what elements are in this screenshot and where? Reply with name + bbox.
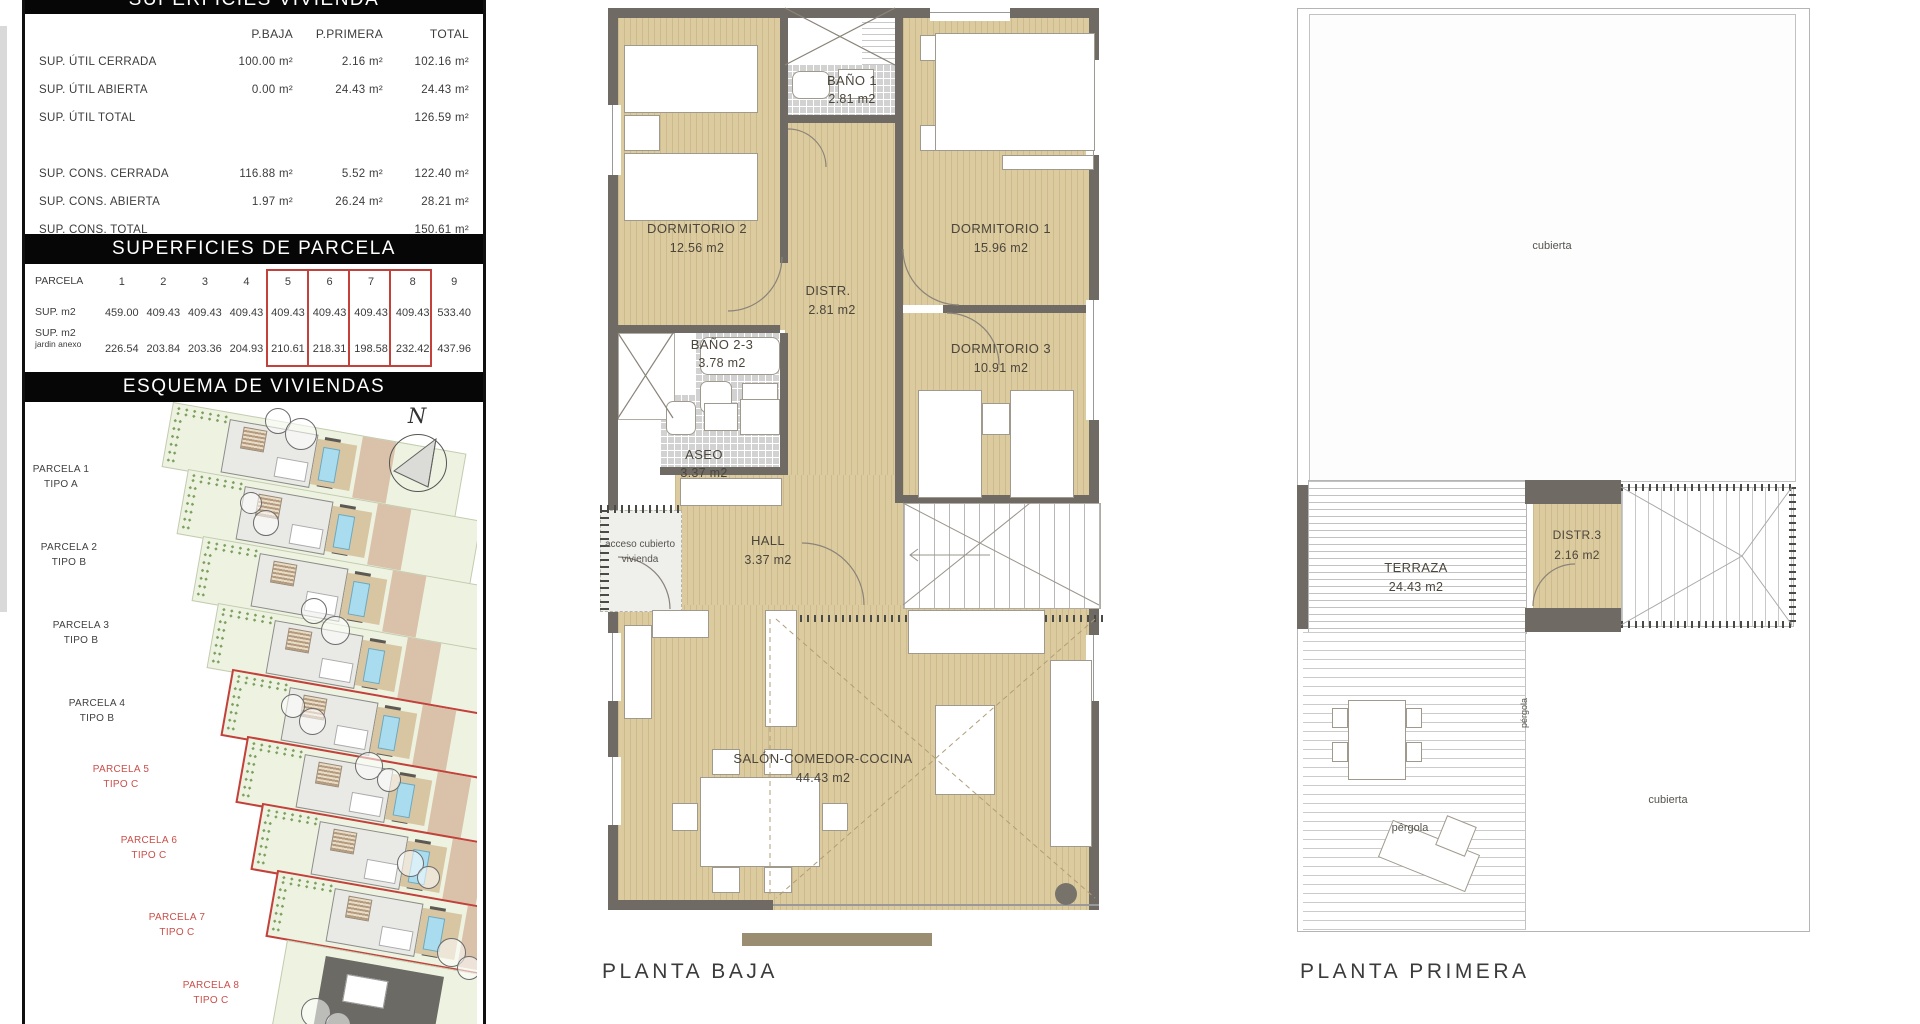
room-name: DISTR.	[805, 283, 850, 298]
cell-value: 102.16 m²	[383, 48, 469, 76]
hporch	[289, 524, 324, 549]
span: TIPO A	[44, 479, 78, 490]
hporch	[349, 792, 384, 817]
hroad	[382, 570, 426, 637]
jardin-value: 226.54	[101, 328, 143, 370]
row-label: PARCELA	[35, 266, 101, 298]
span: acceso cubierto	[605, 539, 675, 550]
g	[903, 503, 1099, 605]
parcel-number: 4	[226, 266, 268, 298]
jardin-value: 437.96	[433, 328, 475, 370]
parcel-number: 9	[433, 266, 475, 298]
hedge-v	[240, 751, 258, 799]
sup-value: 409.43	[226, 298, 268, 328]
hedge-v	[165, 416, 183, 464]
span: PARCELA 5	[93, 764, 149, 775]
jardin-value: 203.84	[143, 328, 185, 370]
planta-baja-plan: DORMITORIO 2 12.56 m2 BAÑO 1 2.81 m2 DOR…	[600, 5, 1115, 945]
path	[802, 543, 864, 605]
hroad	[397, 637, 441, 704]
room-name: TERRAZA	[1384, 560, 1447, 575]
panel-header-text: SUPERFICIES VIVIENDA	[129, 0, 380, 11]
planta-primera-plan: cubierta TERRAZA 24.43 m2 DIS	[1290, 8, 1810, 932]
hhatch	[345, 896, 372, 922]
room-area: 3.37 m2	[680, 466, 727, 480]
tree-icon	[417, 866, 440, 889]
jardin-value: 204.93	[226, 328, 268, 370]
col-header-total: TOTAL	[383, 20, 469, 48]
room-name: SALÓN-COMEDOR-COCINA	[733, 751, 912, 766]
span: PARCELA 7	[149, 912, 205, 923]
path	[1621, 487, 1742, 556]
sup-value: 459.00	[101, 298, 143, 328]
cell-value: 2.16 m²	[293, 48, 383, 76]
cell-value	[293, 104, 383, 132]
cell-value: 24.43 m²	[383, 76, 469, 104]
parcel-number: 2	[143, 266, 185, 298]
row-label: SUP. ÚTIL CERRADA	[39, 48, 215, 76]
room-name: DORMITORIO 1	[951, 221, 1051, 236]
compass-north-label: N	[408, 404, 426, 428]
tree-icon	[301, 598, 327, 624]
hhatch	[330, 829, 357, 855]
path	[1742, 556, 1792, 625]
cubierta-bottom-label: cubierta	[1648, 792, 1687, 809]
architectural-plan-sheet: SUPERFICIES VIVIENDA P.BAJA P.PRIMERA TO…	[0, 0, 1920, 1024]
row-label: SUP. ÚTIL TOTAL	[39, 104, 215, 132]
span: PARCELA 3	[53, 620, 109, 631]
tree-icon	[299, 708, 326, 735]
parcel-number: 3	[184, 266, 226, 298]
parcela-section-title: SUPERFICIES DE PARCELA	[112, 238, 396, 259]
parcel-label-8: PARCELA 8TIPO C	[183, 978, 239, 1008]
room-area: 3.37 m2	[744, 553, 791, 567]
highlight-box-parcela-7	[349, 270, 390, 366]
parcela-section-header: SUPERFICIES DE PARCELA	[25, 234, 483, 264]
cell-value: 0.00 m²	[215, 76, 293, 104]
hedge-v	[255, 818, 273, 866]
hedge-v	[270, 885, 288, 933]
cell-value: 28.21 m²	[383, 188, 469, 216]
parcel-label-4: PARCELA 4TIPO B	[69, 696, 125, 726]
room-name: HALL	[751, 533, 785, 548]
span: TIPO C	[103, 779, 138, 790]
room-area: 15.96 m2	[974, 241, 1029, 255]
acceso-label: acceso cubiertovivienda	[605, 537, 675, 567]
span: vivienda	[622, 554, 659, 565]
path	[903, 503, 1030, 605]
hporch	[319, 658, 354, 683]
hporch	[364, 859, 399, 884]
panel-header-clipped: SUPERFICIES VIVIENDA	[25, 0, 483, 14]
col-header-pprimera: P.PRIMERA	[293, 20, 383, 48]
span: TIPO C	[159, 927, 194, 938]
span: PARCELA 6	[121, 835, 177, 846]
parcel-label-2: PARCELA 2TIPO B	[41, 540, 97, 570]
highlight-box-parcela-8	[390, 270, 431, 366]
planta-baja-linework	[600, 5, 1115, 945]
span: TIPO B	[80, 713, 115, 724]
hhatch	[240, 427, 267, 453]
cell-value	[215, 104, 293, 132]
jardin-label-2: jardin anexo	[35, 340, 81, 349]
parcel-label-3: PARCELA 3TIPO B	[53, 618, 109, 648]
tree-icon	[377, 768, 401, 792]
span: PARCELA 1	[33, 464, 89, 475]
room-name: ASEO	[685, 447, 723, 462]
parcel-label-7: PARCELA 7TIPO C	[149, 910, 205, 940]
pergola-vertical-label: pérgola	[1518, 698, 1532, 728]
cell-value: 26.24 m²	[293, 188, 383, 216]
cell-value: 100.00 m²	[215, 48, 293, 76]
sup-value: 409.43	[143, 298, 185, 328]
path	[1533, 564, 1575, 606]
hporch	[274, 457, 309, 482]
parcel-label-6: PARCELA 6TIPO C	[121, 833, 177, 863]
tree-icon	[253, 510, 279, 536]
span: PARCELA 2	[41, 542, 97, 553]
sup-value: 533.40	[433, 298, 475, 328]
cell-value: 5.52 m²	[293, 160, 383, 188]
room-name: DORMITORIO 2	[647, 221, 747, 236]
parcel-number: 1	[101, 266, 143, 298]
edge-sliver	[0, 26, 7, 612]
room-name: DISTR.3	[1553, 528, 1602, 542]
hhatch	[270, 561, 297, 587]
cell-value: 116.88 m²	[215, 160, 293, 188]
cell-value: 126.59 m²	[383, 104, 469, 132]
path	[947, 313, 999, 365]
hroad	[412, 704, 456, 771]
sup-value: 409.43	[184, 298, 226, 328]
room-area: 12.56 m2	[670, 241, 725, 255]
jardin-value: 203.36	[184, 328, 226, 370]
jardin-label-1: SUP. m2	[35, 328, 76, 340]
span: TIPO C	[193, 995, 228, 1006]
path	[788, 129, 826, 167]
compass-icon	[389, 434, 447, 492]
room-area: 44.43 m2	[796, 771, 851, 785]
planta-baja-title: PLANTA BAJA	[602, 960, 778, 984]
hedge-v	[210, 617, 228, 665]
cell-value: 24.43 m²	[293, 76, 383, 104]
room-area: 24.43 m2	[1389, 580, 1444, 594]
span: TIPO B	[64, 635, 99, 646]
room-name: BAÑO 2-3	[691, 337, 753, 352]
hroad	[442, 838, 477, 905]
room-area: 2.81 m2	[808, 303, 855, 317]
span: PARCELA 8	[183, 980, 239, 991]
spacer	[39, 132, 469, 146]
hedge-v	[180, 483, 198, 531]
path	[1621, 556, 1742, 625]
span: PARCELA 4	[69, 698, 125, 709]
room-area: 10.91 m2	[974, 361, 1029, 375]
pergola-label: pérgola	[1392, 820, 1429, 837]
esquema-section-header: ESQUEMA DE VIVIENDAS	[25, 372, 483, 402]
parcel-label-1: PARCELA 1TIPO A	[33, 462, 89, 492]
cell-value: 1.97 m²	[215, 188, 293, 216]
hhatch	[285, 628, 312, 654]
areas-table: P.BAJA P.PRIMERA TOTAL SUP. ÚTIL CERRADA…	[39, 20, 469, 244]
info-panel: SUPERFICIES VIVIENDA P.BAJA P.PRIMERA TO…	[22, 0, 486, 1024]
row-label: SUP. CONS. ABIERTA	[39, 188, 215, 216]
hhatch	[315, 762, 342, 788]
hporch	[379, 926, 414, 951]
room-area: 2.81 m2	[828, 92, 875, 106]
row-label: SUP. m2	[35, 298, 101, 328]
row-label: SUP. CONS. CERRADA	[39, 160, 215, 188]
parcel-label-5: PARCELA 5TIPO C	[93, 762, 149, 792]
room-area: 2.16 m2	[1554, 548, 1599, 562]
compass-triangle	[390, 435, 446, 491]
path	[728, 257, 782, 311]
hedge-v	[225, 684, 243, 732]
col-header-pbaja: P.BAJA	[215, 20, 293, 48]
tree-icon	[321, 616, 350, 645]
planta-primera-linework	[1290, 8, 1810, 932]
cell-value: 122.40 m²	[383, 160, 469, 188]
highlight-box-parcela-5	[267, 270, 308, 366]
hedge-v	[195, 550, 213, 598]
span: TIPO B	[52, 557, 87, 568]
row-label: SUP. ÚTIL ABIERTA	[39, 76, 215, 104]
exterior-step	[742, 933, 932, 946]
tree-icon	[457, 956, 477, 980]
hporch	[334, 725, 369, 750]
span: TIPO C	[131, 850, 166, 861]
room-area: 3.78 m2	[698, 356, 745, 370]
cell-empty	[39, 20, 215, 48]
path	[1742, 487, 1792, 556]
path	[903, 249, 959, 305]
g	[1621, 487, 1792, 625]
tree-icon	[285, 418, 317, 450]
row-label: SUP. m2 jardin anexo	[35, 328, 101, 370]
hbase	[326, 888, 424, 957]
hroad	[367, 503, 411, 570]
path	[903, 503, 1099, 605]
planta-primera-title: PLANTA PRIMERA	[1300, 960, 1530, 984]
room-name: DORMITORIO 3	[951, 341, 1051, 356]
highlight-box-parcela-6	[308, 270, 349, 366]
hroad	[427, 771, 471, 838]
esquema-section-title: ESQUEMA DE VIVIENDAS	[123, 376, 385, 397]
room-name: BAÑO 1	[827, 73, 877, 88]
